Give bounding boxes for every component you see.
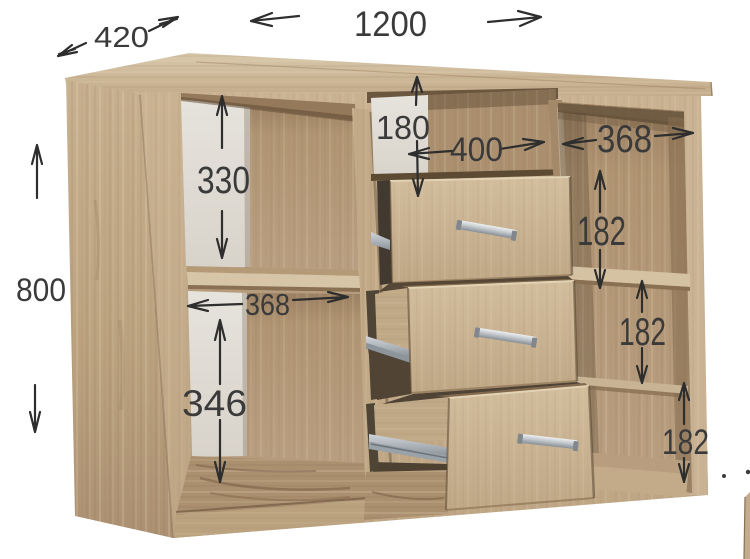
svg-text:1200: 1200 bbox=[354, 5, 427, 44]
svg-text:182: 182 bbox=[662, 423, 709, 462]
svg-text:182: 182 bbox=[619, 311, 666, 354]
svg-text:182: 182 bbox=[577, 208, 626, 254]
svg-text:800: 800 bbox=[16, 272, 66, 308]
svg-text:180: 180 bbox=[376, 109, 430, 146]
svg-text:368: 368 bbox=[245, 287, 290, 322]
svg-text:346: 346 bbox=[182, 383, 247, 424]
svg-text:420: 420 bbox=[94, 22, 149, 54]
svg-text:330: 330 bbox=[197, 160, 250, 202]
svg-text:400: 400 bbox=[450, 131, 503, 169]
svg-text:368: 368 bbox=[597, 118, 652, 161]
